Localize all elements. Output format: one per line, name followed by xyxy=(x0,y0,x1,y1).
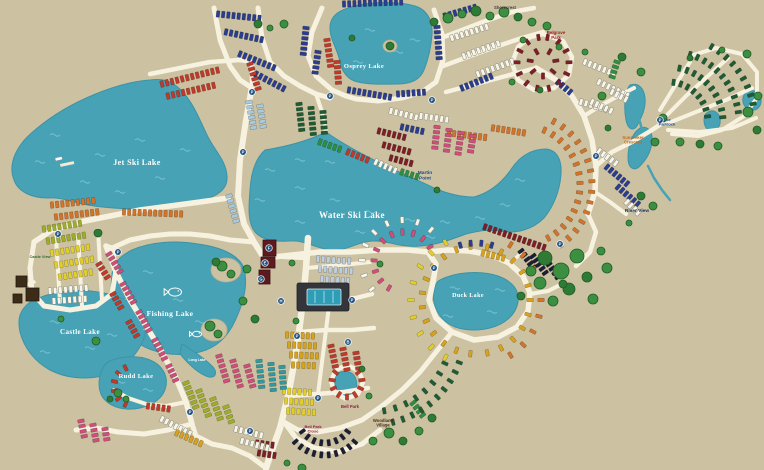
caravan-pitch-white xyxy=(424,113,428,120)
tree-icon xyxy=(676,138,684,146)
caravan-pitch-white xyxy=(474,26,479,33)
tree-icon xyxy=(537,87,543,93)
caravan-pitch-olive xyxy=(228,419,235,424)
caravan-pitch-navy xyxy=(300,47,307,51)
caravan-pitch-teal xyxy=(258,385,265,389)
caravan-pitch-orange xyxy=(569,152,576,158)
caravan-pitch-pink xyxy=(443,149,450,153)
caravan-pitch-olive xyxy=(226,414,233,419)
caravan-pitch-olive xyxy=(77,233,81,240)
caravan-pitch-navy xyxy=(302,31,309,35)
svg-text:F: F xyxy=(268,246,271,251)
area-label-woodland-village: WoodlandVillage xyxy=(373,418,394,428)
caravan-pitch-dkgreen xyxy=(400,415,405,422)
caravan-pitch-gold xyxy=(306,332,310,339)
caravan-pitch-white xyxy=(582,58,588,65)
caravan-pitch-navy xyxy=(435,41,442,45)
caravan-pitch-dkgreen xyxy=(735,110,742,114)
caravan-pitch-orange xyxy=(572,227,579,234)
caravan-pitch-olive xyxy=(62,222,66,229)
caravan-pitch-gold xyxy=(300,352,304,359)
caravan-pitch-white xyxy=(608,107,614,114)
caravan-pitch-red xyxy=(201,84,206,91)
caravan-pitch-olive xyxy=(197,393,204,399)
caravan-pitch-orange xyxy=(122,209,126,216)
caravan-pitch-maroon xyxy=(270,442,274,449)
caravan-pitch-yellow xyxy=(54,261,58,268)
caravan-pitch-red xyxy=(330,354,337,359)
caravan-pitch-dkgreen xyxy=(426,400,433,407)
caravan-pitch-gold xyxy=(298,342,302,349)
caravan-pitch-olive xyxy=(195,388,202,394)
caravan-pitch-navy xyxy=(379,0,383,6)
caravan-pitch-ltblue xyxy=(257,109,264,113)
road xyxy=(299,328,374,332)
caravan-pitch-navy xyxy=(247,14,251,21)
caravan-pitch-gold xyxy=(468,350,472,357)
caravan-pitch-yellow xyxy=(68,272,72,279)
caravan-pitch-navy xyxy=(224,28,229,35)
facility-marker-p: P xyxy=(187,409,194,416)
caravan-pitch-white xyxy=(601,81,607,88)
caravan-pitch-orange xyxy=(65,200,69,207)
caravan-pitch-yellow xyxy=(59,261,63,268)
caravan-pitch-gold xyxy=(430,330,437,337)
caravan-pitch-orange xyxy=(551,118,557,125)
caravan-pitch-orange xyxy=(50,202,54,209)
caravan-pitch-olive xyxy=(42,225,46,232)
caravan-pitch-orange xyxy=(522,129,526,136)
caravan-pitch-olive xyxy=(190,399,197,405)
lake-label-castle-lake: Castle Lake xyxy=(60,328,100,336)
caravan-pitch-gold xyxy=(485,244,490,251)
caravan-pitch-navy xyxy=(244,33,249,40)
caravan-pitch-yellow xyxy=(410,315,417,320)
caravan-pitch-dkgreen xyxy=(716,99,723,105)
caravan-pitch-red xyxy=(185,74,190,81)
facility-marker-e: E xyxy=(262,260,269,267)
caravan-pitch-yellow xyxy=(293,388,297,395)
area-label-shorecrest: Shorecrest xyxy=(494,5,516,10)
tree-icon xyxy=(458,10,466,18)
caravan-pitch-olive xyxy=(205,413,212,419)
caravan-pitch-yellow xyxy=(79,257,83,264)
caravan-pitch-navy xyxy=(229,29,234,36)
facility-marker-p: P xyxy=(115,249,122,256)
caravan-pitch-dkgreen xyxy=(441,360,448,366)
caravan-pitch-pale xyxy=(349,268,353,275)
caravan-pitch-dkgreen xyxy=(321,126,328,130)
caravan-pitch-pink xyxy=(469,134,476,138)
caravan-pitch-yellow xyxy=(408,298,415,301)
caravan-pitch-maroon xyxy=(392,144,397,151)
caravan-pitch-dkgreen xyxy=(297,112,304,116)
tree-icon xyxy=(526,266,536,276)
lake-label-rudd-lake: Rudd Lake xyxy=(119,373,154,380)
caravan-pitch-white xyxy=(464,30,469,37)
facility-marker-f: F xyxy=(266,245,273,252)
caravan-pitch-red xyxy=(326,58,333,62)
caravan-pitch-white xyxy=(74,285,78,292)
caravan-pitch-white xyxy=(409,112,414,119)
caravan-pitch-gold xyxy=(441,253,448,260)
caravan-pitch-maroon xyxy=(527,58,534,62)
caravan-pitch-red xyxy=(335,76,342,80)
caravan-pitch-orange xyxy=(91,197,95,204)
caravan-pitch-dkgreen xyxy=(429,379,436,386)
caravan-pitch-navy xyxy=(389,0,393,6)
caravan-pitch-navy xyxy=(436,56,443,60)
tree-icon xyxy=(428,414,436,422)
caravan-pitch-dkgreen xyxy=(723,79,730,85)
caravan-pitch-red xyxy=(341,357,348,362)
caravan-pitch-ltblue xyxy=(259,119,266,123)
tree-icon xyxy=(626,220,632,226)
tree-icon xyxy=(649,202,657,210)
caravan-pitch-white xyxy=(83,295,87,302)
caravan-pitch-dkgreen xyxy=(436,370,443,376)
caravan-pitch-navy xyxy=(231,12,235,19)
caravan-pitch-red xyxy=(334,60,341,64)
caravan-pitch-dkgreen xyxy=(691,70,697,77)
caravan-pitch-olive xyxy=(73,221,77,228)
caravan-pitch-navy xyxy=(242,52,248,59)
caravan-pitch-red xyxy=(161,405,165,412)
caravan-pitch-dkgreen xyxy=(298,123,305,127)
caravan-pitch-olive xyxy=(66,234,70,241)
tree-icon xyxy=(254,20,262,28)
tree-icon xyxy=(377,261,383,267)
caravan-pitch-orange xyxy=(538,298,545,301)
caravan-pitch-yellow xyxy=(83,269,87,276)
caravan-pitch-orange xyxy=(507,241,513,248)
caravan-pitch-dkgreen xyxy=(298,128,305,132)
caravan-pitch-yellow xyxy=(289,398,293,405)
caravan-pitch-maroon xyxy=(397,145,402,152)
caravan-pitch-orange xyxy=(174,210,178,217)
caravan-pitch-dkgreen xyxy=(320,120,327,124)
road xyxy=(284,420,362,432)
caravan-pitch-orange xyxy=(159,210,163,217)
caravan-pitch-teal xyxy=(279,375,286,379)
caravan-pitch-yellow xyxy=(90,256,94,263)
caravan-pitch-navy xyxy=(384,0,388,6)
caravan-pitch-pink xyxy=(218,363,225,368)
svg-text:P: P xyxy=(296,334,299,339)
caravan-pitch-orange xyxy=(90,209,94,216)
caravan-pitch-navy xyxy=(266,62,272,69)
caravan-pitch-gold xyxy=(423,276,430,282)
tree-icon xyxy=(359,366,365,372)
caravan-pitch-pink xyxy=(217,358,224,363)
caravan-pitch-maroon xyxy=(407,148,412,155)
caravan-pitch-yellow xyxy=(286,408,290,415)
facility-marker-p: P xyxy=(55,231,62,238)
caravan-pitch-olive xyxy=(182,380,189,386)
caravan-pitch-red xyxy=(206,83,211,90)
caravan-pitch-white xyxy=(394,109,399,116)
caravan-pitch-pale xyxy=(316,256,320,263)
caravan-pitch-navy xyxy=(367,90,371,97)
caravan-pitch-white xyxy=(404,111,409,118)
caravan-pitch-green xyxy=(409,171,414,178)
caravan-pitch-orange xyxy=(54,214,58,221)
tree-icon xyxy=(637,192,645,200)
facility-marker-h: H xyxy=(278,298,285,305)
caravan-pitch-orange xyxy=(559,123,566,130)
caravan-pitch-gold xyxy=(303,342,307,349)
caravan-pitch-pink xyxy=(248,378,255,383)
caravan-pitch-white xyxy=(399,110,404,117)
caravan-pitch-black xyxy=(304,447,310,454)
caravan-pitch-pale xyxy=(342,257,346,264)
caravan-pitch-gold xyxy=(302,362,306,369)
caravan-pitch-white xyxy=(598,103,604,110)
caravan-pitch-maroon xyxy=(377,127,382,134)
caravan-pitch-pink xyxy=(432,140,439,144)
caravan-pitch-navy xyxy=(216,11,220,18)
caravan-pitch-maroon xyxy=(387,143,392,150)
caravan-pitch-orange xyxy=(578,219,585,225)
caravan-pitch-maroon xyxy=(527,239,532,246)
caravan-pitch-gold xyxy=(485,349,490,356)
caravan-pitch-red xyxy=(195,72,200,79)
tree-icon xyxy=(123,396,129,402)
caravan-pitch-dkgreen xyxy=(456,360,463,365)
facility-marker-p: P xyxy=(247,428,254,435)
caravan-pitch-white xyxy=(362,242,369,248)
caravan-pitch-navy xyxy=(342,1,346,8)
caravan-pitch-dkgreen xyxy=(393,404,398,411)
caravan-pitch-red xyxy=(334,65,341,69)
lake-label-water-ski-lake: Water Ski Lake xyxy=(319,210,385,220)
caravan-pitch-white xyxy=(597,64,603,71)
caravan-pitch-navy xyxy=(242,13,246,20)
caravan-pitch-ltblue xyxy=(250,125,257,129)
caravan-pitch-orange xyxy=(452,130,456,137)
caravan-pitch-navy xyxy=(237,13,241,20)
tree-icon xyxy=(399,437,407,445)
caravan-pitch-yellow xyxy=(442,354,448,361)
caravan-pitch-pale xyxy=(332,257,336,264)
caravan-pitch-orange xyxy=(148,210,152,217)
caravan-pitch-maroon xyxy=(409,160,414,167)
caravan-pitch-red xyxy=(215,67,220,74)
caravan-pitch-orange xyxy=(483,134,487,141)
caravan-pitch-ltblue xyxy=(258,114,265,118)
caravan-pitch-pink xyxy=(249,383,256,388)
caravan-pitch-dkgreen xyxy=(382,407,386,414)
caravan-pitch-yellow xyxy=(312,409,316,416)
caravan-pitch-orange xyxy=(567,130,574,137)
caravan-pitch-white xyxy=(68,297,72,304)
caravan-pitch-navy xyxy=(406,90,410,97)
caravan-pitch-white xyxy=(368,286,375,293)
caravan-pitch-yellow xyxy=(74,258,78,265)
tree-icon xyxy=(543,22,551,30)
tree-icon xyxy=(687,55,693,61)
tree-icon xyxy=(548,296,558,306)
caravan-pitch-white xyxy=(500,61,505,68)
caravan-pitch-dkgreen xyxy=(735,68,742,75)
caravan-pitch-red xyxy=(151,403,155,410)
castle-icon xyxy=(16,276,27,287)
tree-icon xyxy=(520,37,526,43)
caravan-pitch-pink xyxy=(444,143,451,147)
caravan-pitch-teal xyxy=(258,380,265,384)
caravan-pitch-red xyxy=(352,351,359,355)
caravan-pitch-orange xyxy=(577,181,584,185)
facility-marker-p: P xyxy=(429,97,436,104)
caravan-pitch-white xyxy=(359,258,366,262)
caravan-pitch-orange xyxy=(496,125,500,132)
caravan-pitch-pink xyxy=(431,146,438,150)
caravan-pitch-yellow xyxy=(300,398,304,405)
caravan-pitch-ltblue xyxy=(260,124,267,128)
tree-icon xyxy=(556,44,562,50)
caravan-pitch-orange xyxy=(507,351,513,358)
caravan-pitch-pink xyxy=(91,433,98,438)
svg-text:B: B xyxy=(346,340,349,345)
caravan-pitch-olive xyxy=(211,401,218,406)
caravan-pitch-dkgreen xyxy=(699,99,706,105)
caravan-pitch-pale xyxy=(328,266,332,273)
caravan-pitch-maroon xyxy=(394,156,399,163)
tree-icon xyxy=(384,428,394,438)
svg-text:P: P xyxy=(595,154,598,159)
caravan-pitch-dkgreen xyxy=(701,57,707,64)
tree-icon xyxy=(486,12,494,20)
caravan-pitch-white xyxy=(480,69,485,76)
caravan-pitch-pink xyxy=(445,133,452,137)
facility-marker-p: P xyxy=(557,241,564,248)
caravan-pitch-dkgreen xyxy=(296,107,303,111)
caravan-pitch-yellow xyxy=(81,245,85,252)
caravan-pitch-teal xyxy=(268,362,275,366)
caravan-pitch-pink xyxy=(446,128,453,132)
caravan-pitch-navy xyxy=(226,12,230,19)
caravan-pitch-pink xyxy=(237,383,244,388)
caravan-pitch-dkgreen xyxy=(320,110,327,114)
caravan-pitch-olive xyxy=(209,396,216,401)
map-canvas: Lakeside holiday park site map PPPPFEGHP… xyxy=(0,0,764,470)
caravan-pitch-orange xyxy=(511,128,515,135)
caravan-pitch-orange xyxy=(529,328,536,334)
caravan-pitch-white xyxy=(245,439,250,446)
caravan-pitch-pale xyxy=(336,277,340,284)
tree-icon xyxy=(714,142,722,150)
caravan-pitch-gold xyxy=(179,431,185,438)
tree-icon xyxy=(559,280,567,288)
caravan-pitch-white xyxy=(459,31,464,38)
caravan-pitch-orange xyxy=(86,198,90,205)
tree-icon xyxy=(743,107,753,117)
caravan-pitch-navy xyxy=(401,90,405,97)
svg-text:P: P xyxy=(57,232,60,237)
caravan-pitch-maroon xyxy=(389,154,394,161)
caravan-pitch-white xyxy=(64,286,68,293)
caravan-pitch-navy xyxy=(267,78,273,85)
svg-text:H: H xyxy=(279,299,282,304)
caravan-pitch-orange xyxy=(563,144,570,151)
park-map-svg: Lakeside holiday park site map PPPPFEGHP… xyxy=(0,0,764,470)
caravan-pitch-pale xyxy=(320,276,324,283)
caravan-pitch-white xyxy=(58,287,62,294)
caravan-pitch-white xyxy=(361,273,368,278)
caravan-pitch-yellow xyxy=(75,245,79,252)
caravan-pitch-red xyxy=(180,75,185,82)
caravan-pitch-white xyxy=(578,98,583,105)
caravan-pitch-dkgreen xyxy=(446,378,453,384)
caravan-pitch-navy xyxy=(358,0,362,7)
caravan-pitch-olive xyxy=(61,235,65,242)
caravan-pitch-white xyxy=(490,65,495,72)
caravan-pitch-gold xyxy=(498,344,504,351)
caravan-pitch-white xyxy=(69,286,73,293)
caravan-pitch-yellow xyxy=(63,273,67,280)
caravan-pitch-dkgreen xyxy=(731,94,738,100)
caravan-pitch-navy xyxy=(312,65,319,69)
caravan-pitch-pink xyxy=(77,419,84,424)
caravan-pitch-ltblue xyxy=(225,193,232,198)
caravan-pitch-dkgreen xyxy=(729,60,736,67)
caravan-pitch-navy xyxy=(362,89,366,96)
caravan-pitch-olive xyxy=(78,220,82,227)
caravan-pitch-orange xyxy=(557,137,564,144)
tree-icon xyxy=(94,229,102,237)
caravan-pitch-dkgreen xyxy=(296,102,303,106)
caravan-pitch-white xyxy=(78,296,82,303)
caravan-pitch-white xyxy=(587,60,593,67)
caravan-pitch-navy xyxy=(314,50,321,54)
caravan-pitch-yellow xyxy=(305,399,309,406)
caravan-pitch-yellow xyxy=(428,344,435,351)
caravan-pitch-orange xyxy=(80,210,84,217)
caravan-pitch-white xyxy=(419,112,423,119)
caravan-pitch-red xyxy=(196,85,201,92)
caravan-pitch-maroon xyxy=(552,58,559,62)
caravan-pitch-gold xyxy=(315,353,319,360)
stream xyxy=(648,166,670,200)
caravan-pitch-navy xyxy=(452,9,457,16)
caravan-pitch-olive xyxy=(52,224,56,231)
caravan-pitch-black xyxy=(311,450,316,457)
caravan-pitch-navy xyxy=(394,0,398,6)
caravan-pitch-orange xyxy=(573,161,580,166)
caravan-pitch-maroon xyxy=(272,452,276,459)
caravan-pitch-orange xyxy=(60,200,64,207)
caravan-pitch-maroon xyxy=(533,48,539,55)
caravan-pitch-navy xyxy=(399,0,403,5)
caravan-pitch-navy xyxy=(301,41,308,45)
tree-icon xyxy=(443,13,453,23)
caravan-pitch-olive xyxy=(215,411,222,416)
tree-icon xyxy=(534,277,546,289)
caravan-pitch-orange xyxy=(133,209,137,216)
tree-icon xyxy=(582,272,592,282)
caravan-pitch-gold xyxy=(301,332,305,339)
tree-icon xyxy=(598,92,606,100)
caravan-pitch-yellow xyxy=(60,248,64,255)
caravan-pitch-pale xyxy=(330,276,334,283)
caravan-pitch-yellow xyxy=(58,273,62,280)
caravan-pitch-orange xyxy=(565,235,572,242)
caravan-pitch-gold xyxy=(509,336,516,343)
svg-text:P: P xyxy=(351,298,354,303)
caravan-pitch-dkgreen xyxy=(310,132,317,136)
facility-marker-p: P xyxy=(294,333,301,340)
tree-icon xyxy=(289,260,295,266)
